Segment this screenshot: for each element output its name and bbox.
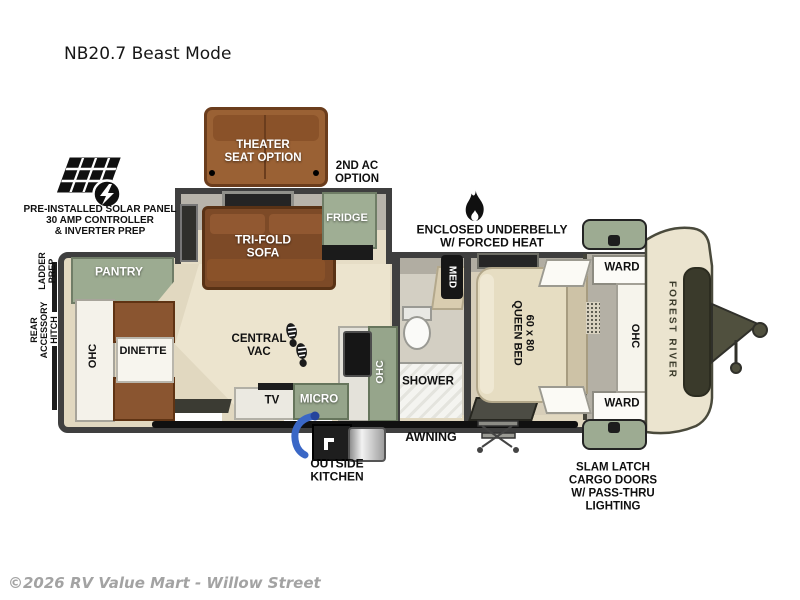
sofa-seat [207,259,325,281]
queen-bed-label: 60 x 80QUEEN BED [511,300,536,365]
cargo-door-handle [608,422,620,433]
dinette-bench [113,377,175,421]
toilet [403,316,431,350]
theater-seat-label: THEATERSEAT OPTION [224,139,301,165]
nightstand [538,259,592,287]
awning-label: AWNING [405,430,456,444]
entry-steps-icon [472,419,524,455]
theater-seat-back [213,115,319,141]
underbelly-annotation: ENCLOSED UNDERBELLYW/ FORCED HEAT [417,224,568,251]
rear-accessory-hitch-label: REARACCESSORYHITCH [29,302,59,359]
bed-comforter-edge [480,274,494,394]
brand-label: FOREST RIVER [666,281,677,379]
sofa-cushion [210,214,265,234]
fridge-label: FRIDGE [326,212,368,224]
cargo-door-handle [608,235,620,246]
mount-dot [313,170,319,176]
central-vac-label: CENTRALVAC [232,333,287,359]
solar-annotation: PRE-INSTALLED SOLAR PANEL30 AMP CONTROLL… [24,204,177,238]
front-cap [638,218,778,452]
tv-label: TV [265,395,280,408]
nightstand [538,386,592,414]
ladder-prep-label: LADDERPREP [37,252,57,290]
micro-label: MICRO [300,394,338,407]
ohc-rear-label: OHC [87,344,99,368]
flame-icon [462,188,488,224]
slide-window [180,204,198,262]
pantry-label: PANTRY [95,265,143,278]
outside-kitchen-hose-icon [287,411,325,459]
dinette-label: DINETTE [119,345,166,357]
outside-kitchen-annotation: OUTSIDEKITCHEN [310,458,363,485]
ohc-kitchen-label: OHC [375,360,387,383]
ward-top-label: WARD [604,262,639,275]
med-label: MED [446,266,457,288]
ohc-front-label: OHC [629,324,641,348]
copyright-text: ©2026 RV Value Mart - Willow Street [8,574,321,592]
shower-label: SHOWER [402,376,454,389]
cargo-door-top [582,219,647,250]
fridge-base-cabinet [322,245,373,260]
shower [400,362,462,418]
bedroom-screen-vent [586,302,600,334]
slam-latch-annotation: SLAM LATCHCARGO DOORS W/ PASS-THRULIGHTI… [569,461,657,513]
window-sill [170,399,231,413]
second-ac-option-label: 2ND ACOPTION [335,160,379,186]
front-cap-window [684,268,710,396]
cooktop [343,331,372,377]
page-title: NB20.7 Beast Mode [64,44,231,64]
wall-bath-bedroom [464,252,471,421]
sofa-cushion [269,214,324,234]
ward-bottom-label: WARD [604,398,639,411]
cargo-door-bottom [582,419,647,450]
mount-dot [209,170,215,176]
trifold-sofa-label: TRI-FOLDSOFA [235,234,291,261]
floorplan-page: NB20.7 Beast Mode THEATERSEAT OPTION 2ND… [0,0,800,600]
bed-headboard [566,274,588,394]
